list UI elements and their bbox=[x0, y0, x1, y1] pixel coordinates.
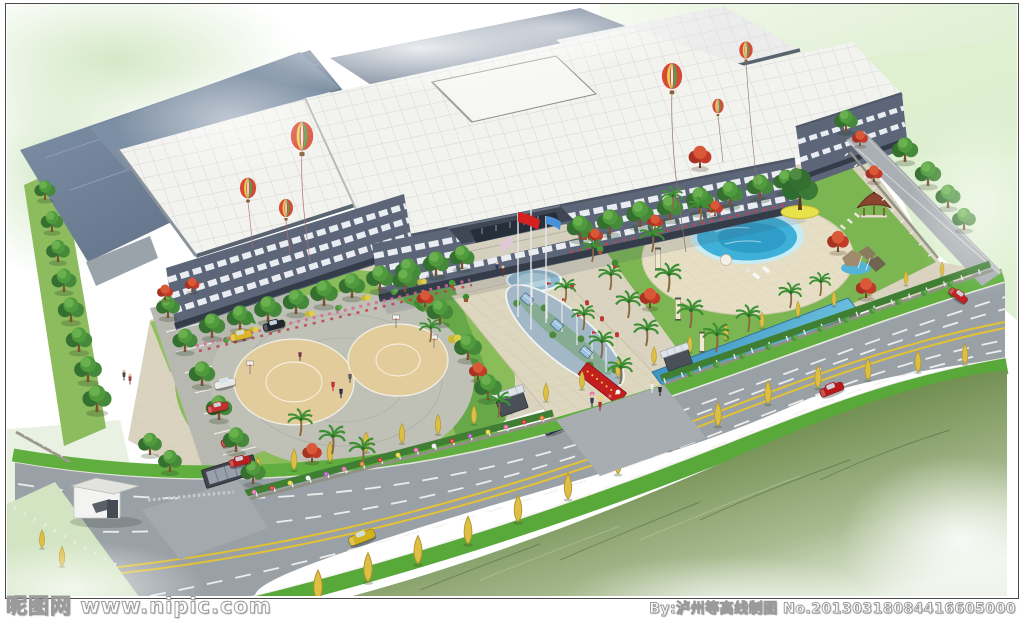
basketball-court-left bbox=[234, 339, 354, 425]
watermark-credit: By:泸州等高线制图 bbox=[649, 601, 777, 617]
architectural-rendering bbox=[0, 0, 1024, 622]
pool-umbrella bbox=[721, 255, 732, 266]
watermark-right: By:泸州等高线制图 No.20130318084416605000 bbox=[649, 598, 1016, 618]
watermark-site-name: 昵图网 bbox=[6, 594, 72, 618]
watermark-serial: No.20130318084416605000 bbox=[783, 601, 1016, 617]
nipic-stock-image-page: 昵图网 www.nipic.com By:泸州等高线制图 No.20130318… bbox=[0, 0, 1024, 622]
watermark-left: 昵图网 www.nipic.com bbox=[6, 590, 272, 620]
watermark-site-url: www.nipic.com bbox=[80, 594, 271, 618]
